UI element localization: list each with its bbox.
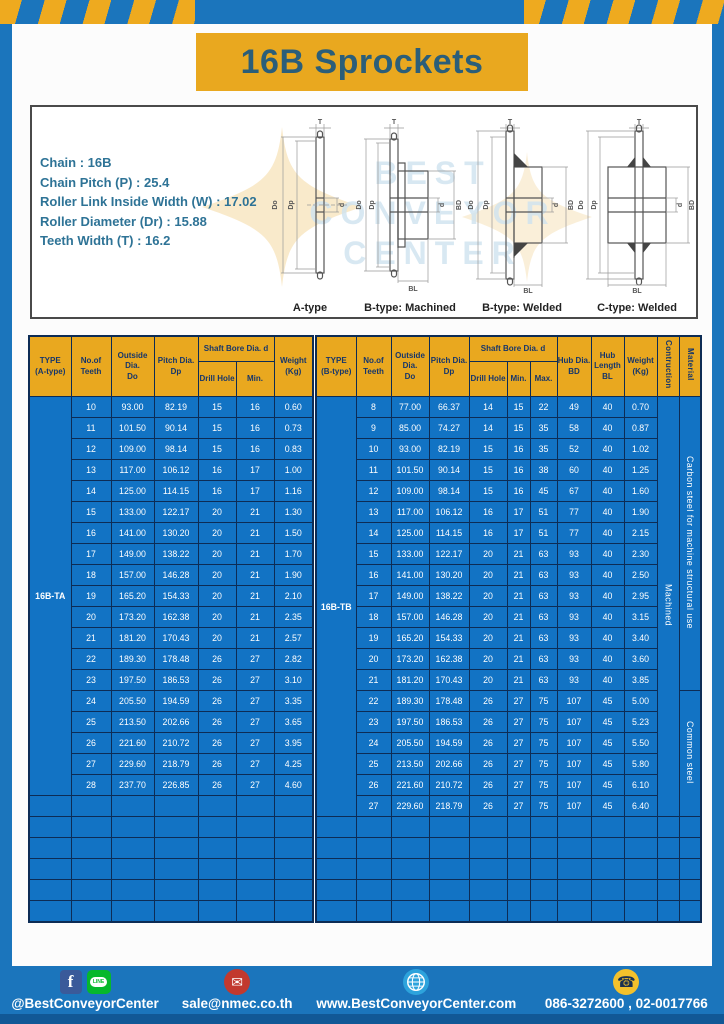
table-cell: 15 [198,418,236,439]
table-cell: 162.38 [154,607,198,628]
table-cell: 93 [557,649,591,670]
footer-phone-numbers: 086-3272600 , 02-0017766 [545,996,708,1011]
table-cell: 162.38 [429,649,469,670]
table-cell: 49 [557,397,591,418]
column-header: OutsideDia.Do [391,336,429,397]
empty-cell [236,817,274,838]
table-cell: 26 [198,754,236,775]
footer-email: ✉ sale@nmec.co.th [170,969,304,1011]
table-cell: 149.00 [391,586,429,607]
empty-cell [71,901,111,923]
empty-cell [557,859,591,880]
table-cell: 27 [356,796,391,817]
table-cell: 25 [71,712,111,733]
table-cell: 1.60 [624,481,657,502]
table-cell: 197.50 [391,712,429,733]
table-cell: 98.14 [154,439,198,460]
table-cell: 107 [557,733,591,754]
table-cell: 210.72 [154,733,198,754]
table-cell: 77 [557,502,591,523]
table-cell: 24 [71,691,111,712]
table-cell: 3.15 [624,607,657,628]
empty-cell [679,817,701,838]
column-header: Pitch Dia.Dp [154,336,198,397]
svg-text:Dp: Dp [369,200,376,209]
catalog-page: 16B Sprockets BEST CONVEYOR CENTER Chain… [0,0,724,1024]
table-cell: 17 [507,523,530,544]
table-cell: 40 [591,460,624,481]
table-row: 21181.20170.4320212.57 [29,628,313,649]
table-cell: 27 [507,796,530,817]
table-cell: 15 [469,481,507,502]
table-cell: 186.53 [154,670,198,691]
table-cell: 63 [530,565,557,586]
diagrams: T Do Dp [266,107,696,317]
table-row: 12109.0098.1415164567401.60 [316,481,701,502]
table-row: 26221.60210.7226273.95 [29,733,313,754]
table-cell: 221.60 [111,733,154,754]
table-cell: 20 [198,544,236,565]
table-cell: 133.00 [111,502,154,523]
table-cell: 45 [530,481,557,502]
table-cell: 93 [557,586,591,607]
table-cell: 218.79 [154,754,198,775]
empty-cell [111,901,154,923]
table-cell: 20 [198,586,236,607]
empty-cell [657,880,679,901]
sprocket-b-welded-drawing-icon: T Do Dp [466,117,578,293]
table-cell: 93 [557,544,591,565]
empty-cell [29,817,71,838]
table-cell: 14 [71,481,111,502]
svg-text:Do: Do [578,200,585,209]
table-cell: 26 [469,754,507,775]
table-cell: 26 [469,712,507,733]
spec-line-roller-dia: Roller Diameter (Dr) : 15.88 [40,212,266,232]
footer-website-text: www.BestConveyorCenter.com [316,996,516,1011]
table-cell: 21 [507,586,530,607]
table-cell: 16 [236,418,274,439]
empty-cell [624,838,657,859]
table-cell: 109.00 [111,439,154,460]
empty-cell [624,880,657,901]
empty-cell [71,880,111,901]
table-cell: 213.50 [111,712,154,733]
table-cell: 2.30 [624,544,657,565]
table-cell: 63 [530,607,557,628]
table-cell: 173.20 [391,649,429,670]
empty-cell [111,838,154,859]
table-cell: 16 [356,565,391,586]
table-cell: 20 [198,523,236,544]
svg-text:T: T [392,119,397,126]
table-cell: 28 [71,775,111,796]
empty-row [316,880,701,901]
empty-cell [507,838,530,859]
table-cell: 14 [469,397,507,418]
table-row: 14125.00114.1516175177402.15 [316,523,701,544]
table-cell: 15 [507,418,530,439]
empty-cell [154,901,198,923]
table-cell: 6.10 [624,775,657,796]
empty-cell [154,859,198,880]
empty-cell [391,859,429,880]
empty-cell [530,859,557,880]
svg-text:Do: Do [356,200,363,209]
table-row: 17149.00138.2220216393402.95 [316,586,701,607]
table-cell: 17 [507,502,530,523]
table-cell: 21 [507,607,530,628]
table-cell: 45 [591,712,624,733]
type-label-cell: 16B-TA [29,397,71,796]
table-cell: 27 [236,754,274,775]
table-row: 23197.50186.5326273.10 [29,670,313,691]
table-cell: 1.90 [274,565,313,586]
svg-text:Do: Do [272,200,279,209]
empty-cell [557,880,591,901]
table-row: 28237.70226.8526274.60 [29,775,313,796]
table-cell: 2.35 [274,607,313,628]
table-cell: 15 [469,439,507,460]
table-cell: 205.50 [111,691,154,712]
table-cell: 15 [198,439,236,460]
table-cell: 27 [236,691,274,712]
column-header: Min. [507,362,530,397]
table-cell: 40 [591,649,624,670]
table-cell: 85.00 [391,418,429,439]
empty-cell [657,901,679,923]
column-header: Drill Hole [469,362,507,397]
table-cell: 125.00 [391,523,429,544]
sprocket-a-type-drawing-icon: T Do Dp [267,117,353,293]
column-header: Shaft Bore Dia. d [469,336,557,362]
column-header: Hub Dia.BD [557,336,591,397]
table-cell: 40 [591,397,624,418]
empty-cell [624,901,657,923]
construction-cell: Machined [657,397,679,817]
table-row: 15133.00122.1720216393402.30 [316,544,701,565]
diagram-label: A-type [293,302,327,317]
table-cell: 21 [236,544,274,565]
empty-cell [274,796,313,817]
empty-cell [154,880,198,901]
table-cell: 21 [236,523,274,544]
table-cell: 40 [591,439,624,460]
diagram-a-type: T Do Dp [266,117,354,317]
table-cell: 21 [356,670,391,691]
material-cell: Common steel [679,691,701,817]
table-cell: 17 [236,460,274,481]
table-cell: 20 [198,628,236,649]
table-cell: 3.60 [624,649,657,670]
table-cell: 117.00 [111,460,154,481]
top-caution-bar [0,0,724,24]
table-cell: 138.22 [154,544,198,565]
table-cell: 1.00 [274,460,313,481]
globe-icon[interactable] [403,969,429,995]
table-cell: 26 [469,733,507,754]
table-cell: 117.00 [391,502,429,523]
table-row: 20173.20162.3820216393403.60 [316,649,701,670]
table-row: 14125.00114.1516171.16 [29,481,313,502]
table-cell: 15 [198,397,236,418]
table-cell: 18 [356,607,391,628]
column-header: Weight(Kg) [274,336,313,397]
table-header: TYPE(A-type)No.ofTeethOutsideDia.DoPitch… [29,336,313,397]
empty-cell [507,880,530,901]
line-bubble-label: LINE [90,977,107,987]
empty-cell [316,838,356,859]
table-row: 22189.30178.48262775107455.00Common stee… [316,691,701,712]
table-cell: 197.50 [111,670,154,691]
table-cell: 14 [356,523,391,544]
table-cell: 20 [71,607,111,628]
table-cell: 170.43 [154,628,198,649]
footer-bar: f LINE @BestConveyorCenter ✉ sale@nmec.c… [0,966,724,1014]
empty-cell [469,880,507,901]
table-cell: 67 [557,481,591,502]
table-cell: 20 [469,628,507,649]
table-cell: 122.17 [429,544,469,565]
empty-cell [679,838,701,859]
table-row: 25213.50202.66262775107455.80 [316,754,701,775]
svg-text:T: T [318,119,323,126]
empty-cell [198,838,236,859]
empty-cell [679,880,701,901]
column-header: Weight(Kg) [624,336,657,397]
table-cell: 26 [198,733,236,754]
empty-cell [557,901,591,923]
table-cell: 107 [557,712,591,733]
table-cell: 149.00 [111,544,154,565]
table-cell: 107 [557,775,591,796]
column-header: Pitch Dia.Dp [429,336,469,397]
table-cell: 27 [236,775,274,796]
table-cell: 26 [198,775,236,796]
table-cell: 1.70 [274,544,313,565]
footer-website: www.BestConveyorCenter.com [304,969,528,1011]
svg-text:BD: BD [568,200,575,210]
empty-cell [657,817,679,838]
empty-cell [198,796,236,817]
table-cell: 5.23 [624,712,657,733]
table-cell: 21 [507,670,530,691]
table-cell: 9 [356,418,391,439]
diagram-label: B-type: Machined [364,302,456,317]
empty-cell [111,859,154,880]
empty-cell [111,817,154,838]
table-cell: 40 [591,565,624,586]
table-cell: 40 [591,607,624,628]
table-cell: 1.30 [274,502,313,523]
empty-cell [469,901,507,923]
table-row: 17149.00138.2220211.70 [29,544,313,565]
table-cell: 22 [530,397,557,418]
phone-icon[interactable]: ☎ [613,969,639,995]
column-header: Drill Hole [198,362,236,397]
table-cell: 0.87 [624,418,657,439]
table-cell: 154.33 [429,628,469,649]
table-cell: 98.14 [429,481,469,502]
table-row: 16141.00130.2020216393402.50 [316,565,701,586]
empty-cell [71,859,111,880]
table-cell: 15 [356,544,391,565]
empty-cell [469,859,507,880]
table-cell: 93 [557,670,591,691]
empty-cell [29,838,71,859]
table-cell: 21 [236,628,274,649]
table-row: 13117.00106.1216171.00 [29,460,313,481]
empty-cell [624,859,657,880]
empty-cell [391,880,429,901]
table-cell: 27 [236,733,274,754]
table-cell: 90.14 [154,418,198,439]
table-cell: 15 [507,397,530,418]
table-cell: 20 [356,649,391,670]
table-cell: 173.20 [111,607,154,628]
empty-cell [198,901,236,923]
table-cell: 75 [530,712,557,733]
table-row: 11101.5090.1415163860401.25 [316,460,701,481]
header-row: TYPE(B-type)No.ofTeethOutsideDia.DoPitch… [316,336,701,362]
table-row: 16B-TB877.0066.3714152249400.70MachinedC… [316,397,701,418]
table-cell: 75 [530,796,557,817]
table-row: 1093.0082.1915163552401.02 [316,439,701,460]
table-cell: 82.19 [154,397,198,418]
empty-cell [557,817,591,838]
table-cell: 154.33 [154,586,198,607]
table-row: 22189.30178.4826272.82 [29,649,313,670]
table-cell: 63 [530,628,557,649]
table-cell: 40 [591,544,624,565]
table-cell: 13 [71,460,111,481]
empty-cell [356,901,391,923]
table-cell: 165.20 [391,628,429,649]
table-cell: 109.00 [391,481,429,502]
table-cell: 35 [530,439,557,460]
empty-cell [316,859,356,880]
table-cell: 2.50 [624,565,657,586]
table-cell: 51 [530,523,557,544]
empty-cell [356,880,391,901]
line-icon[interactable]: LINE [87,970,111,994]
facebook-icon[interactable]: f [60,970,82,994]
table-cell: 5.50 [624,733,657,754]
table-cell: 1.25 [624,460,657,481]
empty-cell [29,796,71,817]
empty-cell [274,901,313,923]
table-row: 27229.60218.79262775107456.40 [316,796,701,817]
table-cell: 2.57 [274,628,313,649]
spec-line-roller-width: Roller Link Inside Width (W) : 17.02 [40,192,266,212]
empty-cell [591,817,624,838]
table-row: 12109.0098.1415160.83 [29,439,313,460]
table-cell: 10 [356,439,391,460]
table-row: 25213.50202.6626273.65 [29,712,313,733]
table-cell: 27 [236,670,274,691]
table-cell: 6.40 [624,796,657,817]
table-cell: 24 [356,733,391,754]
empty-cell [71,817,111,838]
table-cell: 1.02 [624,439,657,460]
table-cell: 12 [356,481,391,502]
empty-cell [557,838,591,859]
empty-cell [274,838,313,859]
table-cell: 16 [507,460,530,481]
table-row: 18157.00146.2820216393403.15 [316,607,701,628]
table-cell: 27 [507,691,530,712]
column-header: Shaft Bore Dia. d [198,336,274,362]
table-cell: 23 [356,712,391,733]
table-cell: 18 [71,565,111,586]
table-cell: 75 [530,733,557,754]
svg-text:BD: BD [456,200,463,210]
table-cell: 107 [557,691,591,712]
empty-row [316,859,701,880]
table-cell: 93.00 [391,439,429,460]
table-row: 13117.00106.1216175177401.90 [316,502,701,523]
table-cell: 27 [507,712,530,733]
table-cell: 20 [469,565,507,586]
empty-cell [29,880,71,901]
table-cell: 3.85 [624,670,657,691]
column-header: No.ofTeeth [71,336,111,397]
table-cell: 21 [236,565,274,586]
empty-row [316,901,701,923]
svg-text:d: d [677,203,684,207]
column-header: TYPE(B-type) [316,336,356,397]
table-cell: 21 [236,502,274,523]
empty-cell [391,901,429,923]
column-header: Min. [236,362,274,397]
table-row: 19165.20154.3320212.10 [29,586,313,607]
footer-social: f LINE @BestConveyorCenter [0,969,170,1011]
empty-cell [657,838,679,859]
table-cell: 45 [591,796,624,817]
empty-cell [624,817,657,838]
empty-cell [429,880,469,901]
table-cell: 17 [71,544,111,565]
table-cell: 63 [530,649,557,670]
table-cell: 93 [557,565,591,586]
table-cell: 16 [469,502,507,523]
table-row: 27229.60218.7926274.25 [29,754,313,775]
table-cell: 26 [469,775,507,796]
table-cell: 21 [507,649,530,670]
empty-cell [236,838,274,859]
column-header: OutsideDia.Do [111,336,154,397]
table-cell: 2.82 [274,649,313,670]
a-type-table: TYPE(A-type)No.ofTeethOutsideDia.DoPitch… [28,335,314,923]
table-cell: 21 [236,586,274,607]
table-cell: 74.27 [429,418,469,439]
table-cell: 186.53 [429,712,469,733]
empty-cell [111,880,154,901]
table-cell: 4.60 [274,775,313,796]
table-cell: 178.48 [429,691,469,712]
table-body: 16B-TA1093.0082.1915160.6011101.5090.141… [29,397,313,923]
empty-cell [198,817,236,838]
table-cell: 27 [236,712,274,733]
table-cell: 93 [557,607,591,628]
table-cell: 237.70 [111,775,154,796]
table-cell: 75 [530,754,557,775]
table-cell: 181.20 [111,628,154,649]
table-cell: 40 [591,523,624,544]
email-icon[interactable]: ✉ [224,969,250,995]
table-cell: 45 [591,775,624,796]
table-cell: 170.43 [429,670,469,691]
